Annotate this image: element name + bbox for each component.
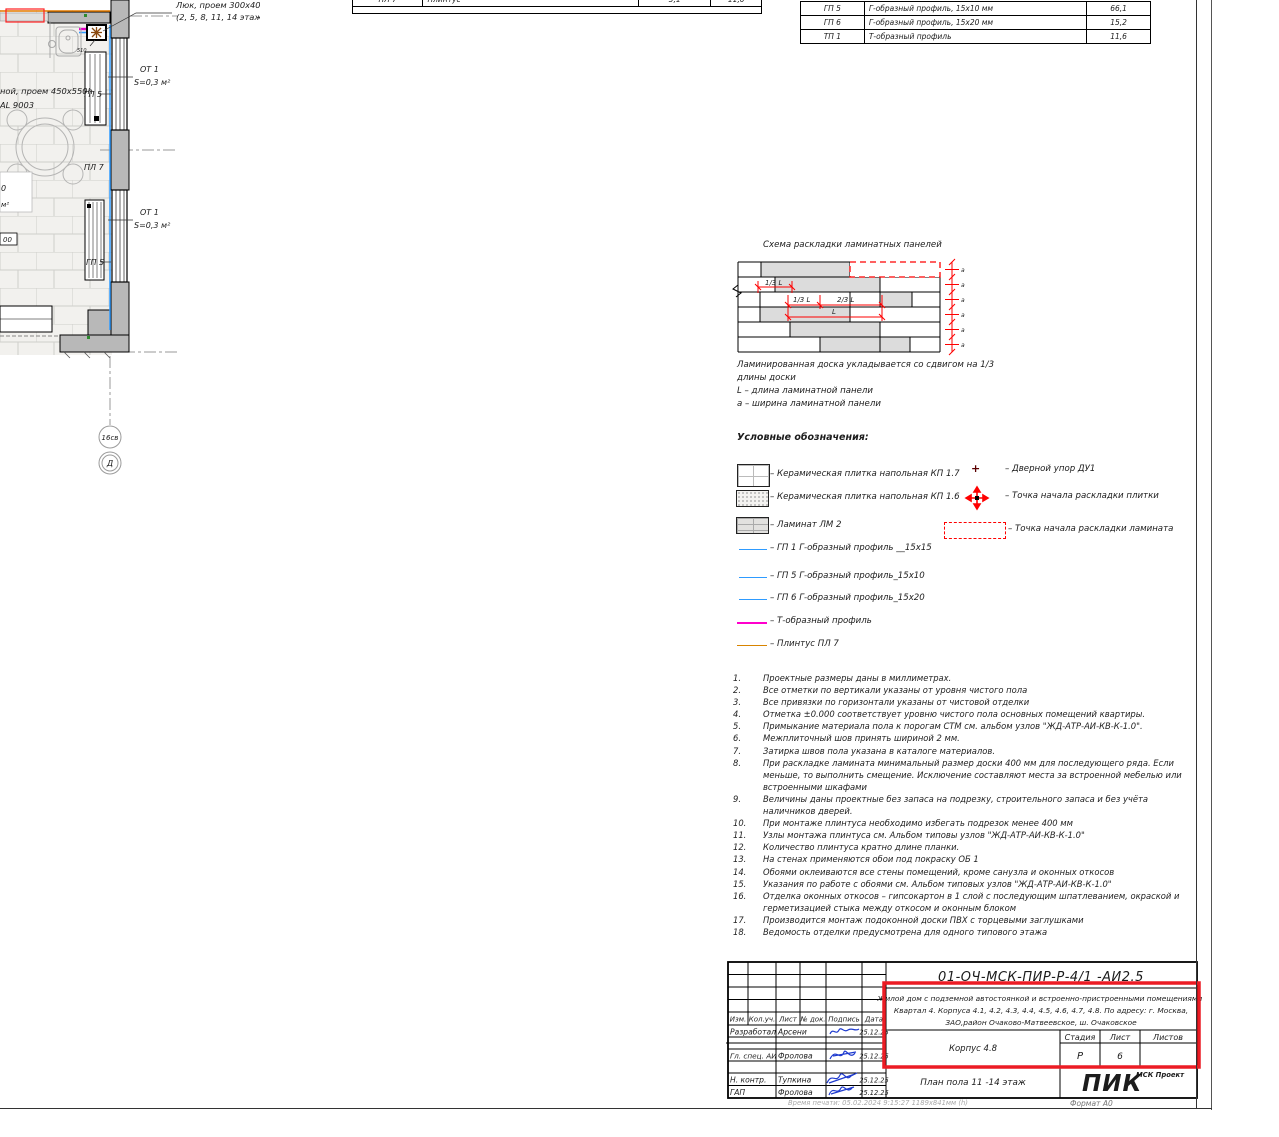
row-name: Арсени — [777, 1028, 807, 1037]
profile-desc: Г-образный профиль, 15х20 мм — [865, 16, 1087, 29]
listov-label: Листов — [1152, 1033, 1183, 1042]
label-ot1-top-area: S=0,3 м² — [134, 78, 171, 87]
dim-width-a5: a — [961, 327, 965, 334]
dim-width-a6: a — [961, 342, 965, 349]
swatch-ceramic-tile-17 — [737, 464, 770, 487]
skirting-value-1: 5,1 — [639, 0, 711, 6]
profile-desc: Г-образный профиль, 15х10 мм — [865, 2, 1087, 15]
label-ot1-bottom: ОТ 1 — [140, 208, 159, 217]
tile-start-point-icon — [962, 483, 992, 513]
col-dok: № док. — [799, 1016, 825, 1024]
profile-value: 66,1 — [1087, 2, 1150, 15]
stage-label: Стадия — [1065, 1033, 1096, 1042]
axis-label-bottom: Д — [106, 459, 113, 468]
general-notes: 1.Проектные размеры даны в миллиметрах. … — [733, 672, 1195, 938]
left-fragment-line2: АL 9003 — [0, 100, 34, 110]
korpus: Корпус 4.8 — [949, 1044, 998, 1054]
legend-item-label: – ГП 5 Г-образный профиль_15х10 — [770, 571, 925, 581]
row-date: 25.12.25 — [859, 1089, 888, 1097]
sheet-title: План пола 11 -14 этаж — [920, 1078, 1026, 1088]
note-item: 13.На стенах применяются обои под покрас… — [733, 853, 1195, 865]
line-gp1-profile — [739, 549, 767, 550]
skirting-desc: Плинтус — [423, 0, 638, 6]
line-skirting — [737, 645, 767, 646]
profile-desc: Т-образный профиль — [865, 30, 1087, 43]
format-label: Формат А0 — [1070, 1099, 1113, 1108]
dim-one-third-b: 1/3 L — [793, 296, 810, 304]
row-name: Фролова — [778, 1088, 813, 1097]
sheet-edge-bottom — [0, 1108, 1212, 1109]
profile-code: ГП 6 — [801, 16, 865, 29]
table-row: ГП 6 Г-образный профиль, 15х20 мм 15,2 — [801, 16, 1150, 30]
label-ot1-top: ОТ 1 — [140, 65, 159, 74]
dim-510: 510 — [77, 48, 87, 54]
note-item: 4.Отметка ±0.000 соответствует уровню чи… — [733, 708, 1195, 720]
legend-item-label: – Точка начала раскладки плитки — [1005, 491, 1159, 501]
col-koluch: Кол.уч. — [749, 1016, 775, 1024]
project-name-line2: Квартал 4. Корпуса 4.1, 4.2, 4.3, 4.4, 4… — [894, 1006, 1188, 1015]
skirting-code: ПЛ 7 — [353, 0, 423, 6]
hatch-callout-line1: Люк, проем 300х400 мм, цвет RAL9003, — [175, 0, 260, 10]
laminate-note-line2: длины доски — [737, 373, 796, 383]
project-name-line1: Жилой дом с подземной автостоянкой и вст… — [876, 994, 1202, 1003]
row-role: Гл. спец. АИ — [730, 1052, 777, 1061]
project-name-line3: ЗАО,район Очаково-Матвеевское, ш. Очаков… — [945, 1018, 1137, 1027]
door-stop-icon: + — [971, 462, 980, 475]
skirting-table-fragment: ПЛ 7 Плинтус 5,1 11,0 — [352, 0, 762, 14]
label-ot1-bottom-area: S=0,3 м² — [134, 221, 171, 230]
pik-logo-sub: МСК Проект — [1136, 1071, 1185, 1079]
dim-width-a1: a — [961, 267, 965, 274]
dim-width-a3: a — [961, 297, 965, 304]
line-gp6-profile — [739, 599, 767, 600]
col-list: Лист — [778, 1016, 798, 1024]
left-fragment-line1: ной, проем 450х550h — [0, 86, 93, 96]
row-name: Тупкина — [778, 1076, 812, 1085]
label-gp5-bottom: ГП 5 — [86, 258, 104, 267]
line-gp5-profile — [739, 577, 767, 578]
skirting-value-2: 11,0 — [711, 0, 761, 6]
dim-length: L — [832, 308, 836, 316]
hatch-callout-line2: (2, 5, 8, 11, 14 этаж) — [176, 12, 260, 22]
stage-value: Р — [1077, 1051, 1084, 1062]
note-item: 3.Все привязки по горизонтали указаны от… — [733, 696, 1195, 708]
print-info: Время печати: 05.02.2024 9:15:27 1189х84… — [788, 1099, 968, 1107]
label-pl7: ПЛ 7 — [84, 163, 105, 172]
sheet-edge-right — [1211, 0, 1212, 1110]
fragment-00-box: 00 — [0, 233, 17, 245]
title-block: 01-ОЧ-МСК-ПИР-Р-4/1 -АИ2.5 Жилой дом с п… — [726, 960, 1202, 1110]
note-item: 6.Межплиточный шов принять шириной 2 мм. — [733, 732, 1195, 744]
note-item: 15.Указания по работе с обоями см. Альбо… — [733, 878, 1195, 890]
legend-item-label: – Плинтус ПЛ 7 — [770, 639, 839, 649]
note-item: 8.При раскладке ламината минимальный раз… — [733, 757, 1195, 793]
note-item: 17.Производится монтаж подоконной доски … — [733, 914, 1195, 926]
legend-item-label: – ГП 1 Г-образный профиль __15х15 — [770, 543, 932, 553]
fragment-m2: м² — [1, 201, 9, 209]
laminate-start-dashed — [850, 262, 940, 277]
swatch-ceramic-tile-16 — [736, 490, 769, 507]
dim-width-a2: a — [961, 282, 965, 289]
row-role: ГАП — [730, 1088, 745, 1097]
dim-two-thirds: 2/3 L — [837, 296, 854, 304]
note-item: 9.Величины даны проектные без запаса на … — [733, 793, 1195, 817]
profile-code: ТП 1 — [801, 30, 865, 43]
pik-logo: ПИК — [1082, 1071, 1142, 1097]
frame-border-right — [1196, 0, 1197, 1109]
laminate-note-line3: L – длина ламинатной панели — [737, 386, 873, 396]
note-item: 10.При монтаже плинтуса необходимо избег… — [733, 817, 1195, 829]
axis-label-top: 16св — [102, 434, 119, 442]
note-item: 5.Примыкание материала пола к порогам СТ… — [733, 720, 1195, 732]
row-role: Н. контр. — [730, 1076, 766, 1085]
note-item: 12.Количество плинтуса кратно длине план… — [733, 841, 1195, 853]
line-t-profile — [737, 622, 767, 624]
list-label: Лист — [1109, 1033, 1131, 1042]
label-gp5-top: ГП 5 — [84, 90, 102, 99]
laminate-start-point-icon — [944, 522, 1006, 539]
list-value: 6 — [1117, 1052, 1123, 1062]
table-row: ТП 1 Т-образный профиль 11,6 — [801, 30, 1150, 43]
green-mark-bottom — [87, 336, 90, 339]
profiles-quantity-table: ГП 5 Г-образный профиль, 15х10 мм 66,1 Г… — [800, 1, 1151, 44]
fragment-zero: 0 — [1, 184, 6, 193]
note-item: 18.Ведомость отделки предусмотрена для о… — [733, 926, 1195, 938]
legend-item-label: – Керамическая плитка напольная КП 1.6 — [770, 492, 960, 502]
laminate-note-line1: Ламинированная доска укладывается со сдв… — [737, 360, 994, 370]
note-item: 11.Узлы монтажа плинтуса см. Альбом типо… — [733, 829, 1195, 841]
drawing-sheet: 16св Д Люк, проем 300х400 мм, цвет RAL90… — [0, 0, 1279, 1137]
note-item: 14.Обоями оклеиваются все стены помещени… — [733, 866, 1195, 878]
col-izm: Изм. — [730, 1016, 746, 1024]
legend-item-label: – Дверной упор ДУ1 — [1005, 464, 1095, 474]
swatch-laminate — [736, 517, 769, 534]
scheme-title: Схема раскладки ламинатных панелей — [763, 240, 942, 250]
row-name: Фролова — [778, 1052, 813, 1061]
note-item: 1.Проектные размеры даны в миллиметрах. — [733, 672, 1195, 684]
legend-item-label: – Т-образный профиль — [770, 616, 872, 626]
legend-title: Условные обозначения: — [737, 432, 869, 443]
row-role: Разработал — [730, 1028, 776, 1037]
profile-code: ГП 5 — [801, 2, 865, 15]
legend-item-label: – Керамическая плитка напольная КП 1.7 — [770, 469, 960, 479]
laminate-layout-scheme: Схема раскладки ламинатных панелей 1/3 L… — [715, 235, 975, 357]
col-podpis: Подпись — [828, 1016, 860, 1024]
note-item: 2.Все отметки по вертикали указаны от ур… — [733, 684, 1195, 696]
svg-text:00: 00 — [3, 236, 12, 244]
row-date: 25.12.25 — [859, 1077, 888, 1085]
legend-item-label: – ГП 6 Г-образный профиль_15х20 — [770, 593, 925, 603]
profile-value: 11,6 — [1087, 30, 1150, 43]
table-row: ГП 5 Г-образный профиль, 15х10 мм 66,1 — [801, 2, 1150, 16]
green-mark-top — [84, 14, 87, 17]
note-item: 7.Затирка швов пола указана в каталоге м… — [733, 745, 1195, 757]
floor-plan: 16св Д Люк, проем 300х400 мм, цвет RAL90… — [0, 0, 260, 480]
profile-value: 15,2 — [1087, 16, 1150, 29]
note-item: 16.Отделка оконных откосов – гипсокартон… — [733, 890, 1195, 914]
legend-item-label: – Ламинат ЛМ 2 — [770, 520, 842, 530]
col-data: Дата — [864, 1016, 883, 1024]
legend-item-label: – Точка начала раскладки ламината — [1008, 524, 1173, 534]
wall-strip-left — [0, 13, 48, 21]
dim-width-a4: a — [961, 312, 965, 319]
dim-one-third-a: 1/3 L — [765, 279, 782, 287]
laminate-note-line4: а – ширина ламинатной панели — [737, 399, 881, 409]
